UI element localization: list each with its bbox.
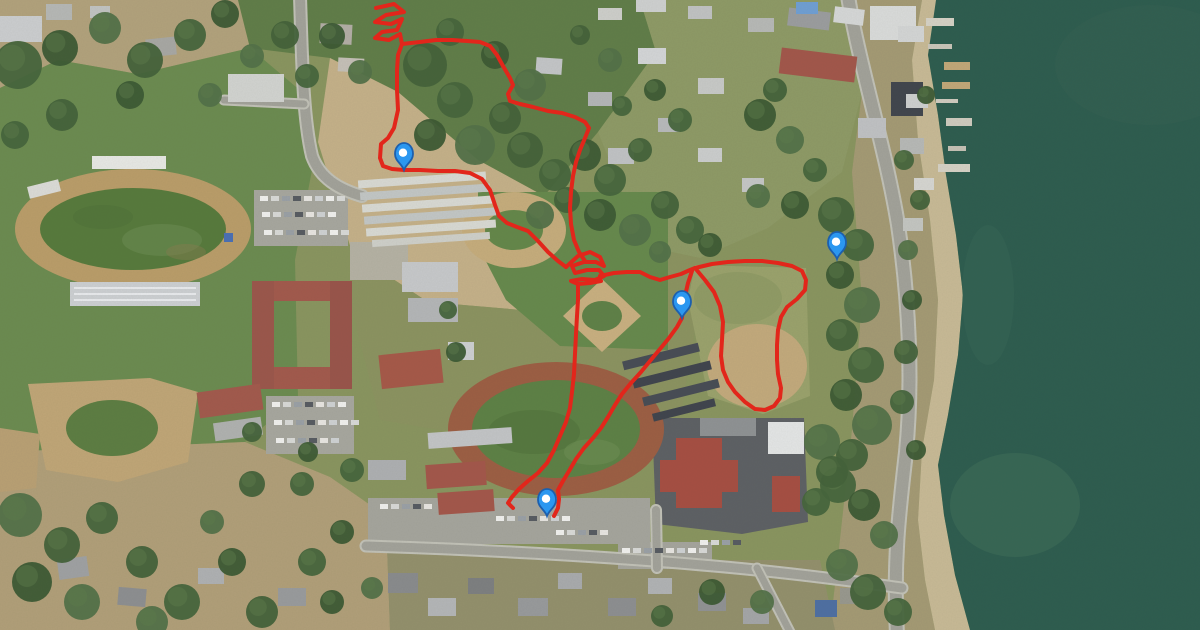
map-canvas[interactable] [0,0,1200,630]
satellite-grain-texture [0,0,1200,630]
pin-center-dot [832,238,840,246]
pin-center-dot [399,149,407,157]
satellite-map [0,0,1200,630]
pin-center-dot [677,297,685,305]
pin-center-dot [542,495,550,503]
map-layers [0,0,1200,630]
